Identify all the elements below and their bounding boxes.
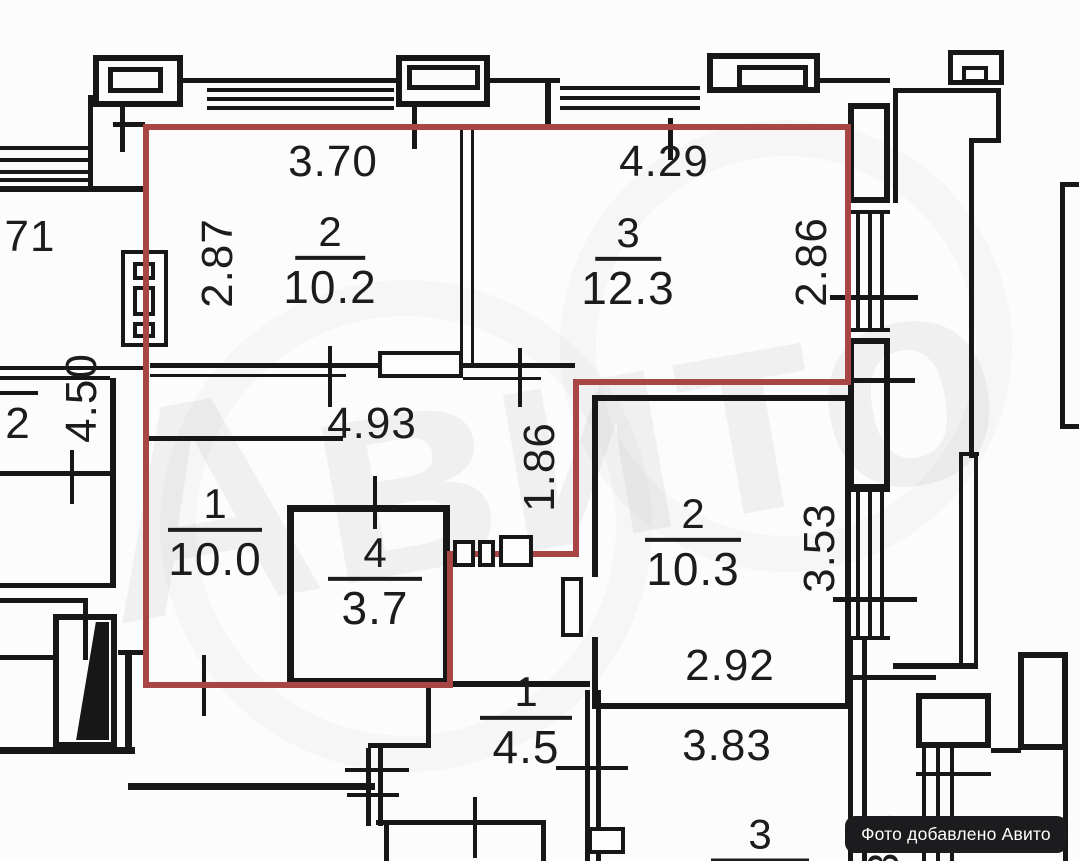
wall-segment — [88, 95, 93, 190]
wall-segment — [0, 471, 115, 476]
apartment-outline-segment — [573, 379, 851, 385]
wall-segment — [848, 675, 936, 680]
wall-segment — [0, 655, 57, 660]
dim-room2-width: 3.70 — [288, 137, 378, 187]
room-number: 3 — [595, 212, 661, 261]
wall-segment — [125, 650, 132, 754]
dim-nroom2-width: 2.92 — [685, 641, 775, 691]
wall-segment — [120, 107, 125, 152]
balcony-wall — [893, 663, 978, 669]
room-number: 2 — [295, 211, 365, 260]
dimension-tick — [345, 768, 409, 772]
wall-segment — [460, 128, 463, 368]
apartment-outline-segment — [447, 551, 453, 688]
wall-segment — [384, 820, 389, 861]
wall-pilaster — [108, 67, 163, 93]
window-line — [850, 636, 890, 640]
dim-hall-width: 4.93 — [327, 399, 417, 449]
wall-segment — [0, 598, 88, 603]
balcony-wall — [893, 88, 898, 203]
wall-segment — [0, 583, 115, 588]
wall-segment — [0, 186, 143, 192]
room-label-4: 4 3.7 — [328, 532, 422, 632]
window-line — [856, 212, 860, 330]
room-area: 4.5 — [480, 723, 572, 771]
dimension-tick — [518, 348, 522, 407]
balcony-wall — [996, 88, 1001, 143]
balcony-wall — [1018, 652, 1068, 750]
balcony-wall — [893, 88, 1001, 93]
wall-segment — [541, 820, 546, 861]
wall-segment — [183, 78, 396, 83]
room-area: 10.2 — [283, 263, 377, 311]
window-line — [207, 88, 394, 92]
wall-pier — [848, 338, 890, 490]
wall-segment — [143, 436, 343, 441]
wall-segment — [592, 395, 598, 577]
door-symbol — [378, 351, 463, 378]
wall-segment — [1060, 424, 1079, 429]
wall-segment — [463, 377, 541, 380]
dim-side-height: 4.50 — [57, 353, 107, 443]
room-number: 2 — [645, 493, 741, 542]
room-label-3: 3 12.3 — [581, 212, 675, 312]
dimension-tick — [328, 346, 332, 407]
watermark-ring — [560, 120, 1012, 572]
room-number: 1 — [168, 483, 262, 532]
room-area: 3.7 — [328, 584, 422, 632]
window-line — [880, 212, 884, 330]
window-line — [207, 106, 394, 110]
room-number: 3 — [711, 814, 809, 861]
window-line — [868, 212, 872, 330]
window-line — [0, 158, 88, 162]
apartment-outline-bottom — [143, 682, 453, 688]
room-label-2: 2 10.2 — [283, 211, 377, 311]
balcony-wall — [959, 455, 963, 668]
window-line — [560, 86, 700, 90]
wall-segment — [592, 395, 850, 401]
dimension-tick — [70, 450, 74, 504]
room-area: 10.0 — [168, 535, 262, 583]
wall-pier — [916, 693, 991, 748]
wall-segment — [545, 78, 551, 128]
wall-segment — [426, 686, 431, 748]
wall-segment — [1060, 182, 1079, 187]
balcony-wall — [969, 138, 974, 458]
wall-segment — [150, 363, 378, 368]
room-area: 12.3 — [581, 264, 675, 312]
wall-segment — [128, 783, 375, 790]
wall-segment — [110, 378, 116, 588]
dim-nroom2-height: 3.53 — [795, 503, 845, 593]
dim-hall-height: 1.86 — [515, 422, 565, 512]
wall-segment — [1060, 182, 1065, 428]
wall-segment — [845, 395, 851, 709]
wall-pilaster — [962, 66, 988, 83]
wall-segment — [845, 378, 915, 383]
window-line — [0, 170, 88, 174]
wall-segment — [0, 747, 135, 754]
room-label-line — [0, 391, 38, 395]
balcony-wall — [974, 455, 978, 668]
dim-left-partial: 71 — [5, 212, 56, 262]
dim-nroom3-width: 3.83 — [682, 721, 772, 771]
wall-segment — [376, 820, 546, 825]
neighbor-bath-label: 1 4.5 — [480, 671, 572, 771]
window-line — [0, 178, 88, 182]
wall-segment — [378, 748, 383, 826]
wall-pilaster — [737, 65, 808, 90]
label-left-room-partial: 2 — [5, 399, 30, 449]
window-line — [560, 96, 700, 100]
shaft-symbol — [453, 540, 475, 567]
door-symbol — [561, 577, 583, 637]
window-line — [868, 490, 872, 638]
dimension-tick — [373, 476, 377, 529]
wall-segment — [592, 703, 850, 709]
dim-room3-height: 2.86 — [787, 217, 837, 307]
window-line — [880, 490, 884, 638]
neighbor-room-label-2: 2 10.3 — [645, 493, 741, 593]
avito-photo-badge: Фото добавлено Авито — [845, 816, 1067, 853]
wall-segment — [113, 122, 145, 127]
window-line — [856, 490, 860, 638]
wall-segment — [347, 793, 399, 797]
dim-room2-height: 2.87 — [193, 218, 243, 308]
dimension-tick — [473, 797, 477, 858]
window-line — [850, 328, 890, 332]
wall-pier — [848, 103, 890, 203]
shaft-symbol — [478, 540, 495, 567]
wall-segment — [150, 374, 346, 377]
wall-pilaster — [407, 65, 480, 90]
room-area: 10.3 — [645, 545, 741, 593]
window-line — [560, 106, 700, 110]
floor-plan: Авито — [0, 0, 1079, 861]
wall-segment — [991, 748, 1021, 753]
wall-segment — [471, 128, 474, 368]
dimension-tick — [830, 295, 918, 300]
dim-room3-width: 4.29 — [619, 137, 709, 187]
neighbor-room-label-3: 3 — [711, 814, 809, 861]
shaft-symbol — [588, 827, 625, 854]
window-line — [0, 146, 88, 150]
apartment-outline-right — [845, 124, 851, 385]
apartment-outline-left — [143, 124, 149, 688]
room-number: 4 — [328, 532, 422, 581]
apartment-outline-segment — [573, 379, 579, 557]
room-label-1: 1 10.0 — [168, 483, 262, 583]
shaft-symbol — [499, 535, 533, 567]
apartment-outline-top — [143, 124, 850, 130]
balcony-wall — [971, 138, 1001, 143]
room-number: 1 — [480, 671, 572, 720]
wall-segment — [820, 78, 890, 83]
window-line — [207, 97, 394, 101]
